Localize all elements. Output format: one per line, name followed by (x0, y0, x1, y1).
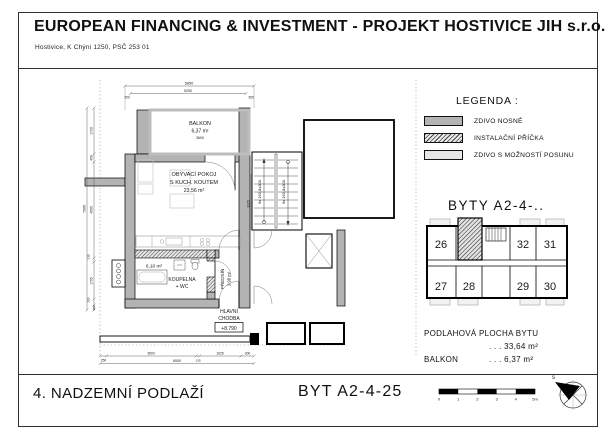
drawing-sheet: EUROPEAN FINANCING & INVESTMENT - PROJEK… (0, 0, 615, 435)
svg-text:4: 4 (515, 397, 518, 402)
kitchen-counter (136, 236, 240, 247)
floor-area-value: . . . 33,64 m² (489, 342, 538, 351)
units-overview-diagram: 26 32 31 27 28 29 30 (424, 214, 576, 310)
svg-text:400: 400 (89, 155, 93, 161)
svg-text:1625: 1625 (216, 352, 224, 356)
svg-text:350: 350 (248, 96, 254, 100)
svg-text:6000: 6000 (173, 359, 181, 363)
corridor-label-1: HLAVNÍ (220, 308, 238, 315)
svg-text:5m: 5m (532, 397, 538, 402)
svg-text:300: 300 (245, 352, 251, 356)
floor-plan: BALKON 6,37 m² 3600 OBÝVACÍ POKOJ S KUCH… (82, 74, 422, 370)
door-jamb-block (250, 333, 259, 345)
stair-flight-label-1: 9x 162,8x300 (257, 179, 262, 204)
corridor-level: +8.790 (221, 326, 237, 332)
service-shaft (112, 260, 125, 287)
unit-27: 27 (435, 281, 447, 293)
mini-highlighted-unit (458, 218, 482, 260)
entry-hall-label: PŘEDSÍŇ (218, 269, 225, 289)
svg-text:135: 135 (87, 254, 91, 259)
compass-icon: s (547, 369, 595, 419)
balcony-area-value: . . . 6,37 m² (489, 355, 533, 364)
legend: LEGENDA : ZDIVO NOSNÉ INSTALAČNÍ PŘÍČKA … (424, 95, 596, 160)
sheet-title: EUROPEAN FINANCING & INVESTMENT - PROJEK… (34, 18, 606, 36)
sheet-address: Hostivice, K Chýni 1250, PSČ 253 01 (35, 44, 150, 51)
toilet (192, 262, 198, 270)
svg-text:2: 2 (476, 397, 479, 402)
living-room: OBÝVACÍ POKOJ S KUCH. KOUTEM 23,56 m² (136, 160, 240, 250)
unit-26: 26 (435, 239, 447, 251)
svg-text:5850: 5850 (185, 82, 193, 86)
balcony-area: 6,37 m² (192, 129, 209, 135)
unit-28: 28 (463, 281, 475, 293)
living-area: 23,56 m² (184, 188, 205, 194)
legend-title: LEGENDA : (456, 95, 596, 107)
living-label-1: OBÝVACÍ POKOJ (172, 171, 217, 178)
unit-30: 30 (544, 281, 556, 293)
floor-title: 4. NADZEMNÍ PODLAŽÍ (33, 385, 204, 402)
titleblock-separator (18, 374, 597, 375)
header-separator (18, 68, 597, 69)
balcony-area-label: BALKON (424, 355, 458, 364)
unit-title: BYT A2-4-25 (298, 383, 403, 401)
svg-text:150: 150 (92, 305, 96, 310)
scale-bar: 0 1 2 3 4 5m (437, 385, 543, 407)
svg-text:3225: 3225 (247, 200, 251, 208)
svg-text:1730: 1730 (89, 127, 93, 135)
svg-text:1: 1 (457, 397, 460, 402)
unit-29: 29 (517, 281, 529, 293)
bathroom-area: 6,10 m² (146, 264, 163, 270)
unit-32: 32 (517, 239, 529, 251)
main-corridor: HLAVNÍ CHODBA +8.790 (100, 308, 259, 345)
svg-text:250: 250 (101, 359, 107, 363)
floor-area-label: PODLAHOVÁ PLOCHA BYTU (424, 329, 538, 338)
scale-bar-labels: 0 1 2 3 4 5m (438, 397, 539, 402)
entry-hall: PŘEDSÍŇ 3,98 m² (218, 269, 239, 308)
svg-text:250: 250 (87, 297, 91, 302)
legend-item-load-bearing: ZDIVO NOSNÉ (424, 116, 596, 126)
corridor-label-2: CHODBA (218, 316, 240, 322)
svg-text:3500: 3500 (147, 352, 155, 356)
svg-text:135: 135 (195, 359, 200, 363)
balcony-label: BALKON (189, 121, 211, 127)
swatch-movable (424, 150, 463, 160)
svg-text:4500: 4500 (89, 206, 93, 214)
north-label: s (552, 375, 555, 381)
svg-text:0: 0 (438, 397, 441, 402)
svg-text:7005: 7005 (82, 205, 86, 213)
swatch-installation (424, 133, 463, 143)
legend-item-installation: INSTALAČNÍ PŘÍČKA (424, 133, 596, 143)
stair-flight-label-2: 9x 162,8x300 (281, 179, 286, 204)
legend-item-movable: ZDIVO S MOŽNOSTÍ POSUNU (424, 150, 596, 160)
svg-text:5250: 5250 (184, 89, 192, 93)
stairs: 9x 162,8x300 9x 162,8x300 (252, 152, 302, 230)
svg-text:1795: 1795 (89, 277, 93, 285)
north-needle (555, 382, 580, 400)
stair-lobby (254, 230, 332, 304)
svg-text:250: 250 (124, 96, 130, 100)
unit-31: 31 (544, 239, 556, 251)
bathroom-label-2: + WC (176, 284, 189, 290)
balcony: BALKON 6,37 m² 3600 (150, 110, 249, 191)
svg-text:3: 3 (495, 397, 498, 402)
balcony-width-dim: 3600 (196, 136, 204, 140)
living-label-2: S KUCH. KOUTEM (170, 180, 219, 186)
swatch-load-bearing (424, 116, 463, 126)
bathroom-label-1: KOUPELNA (168, 277, 196, 283)
units-overview-title: BYTY A2-4-.. (448, 198, 545, 213)
